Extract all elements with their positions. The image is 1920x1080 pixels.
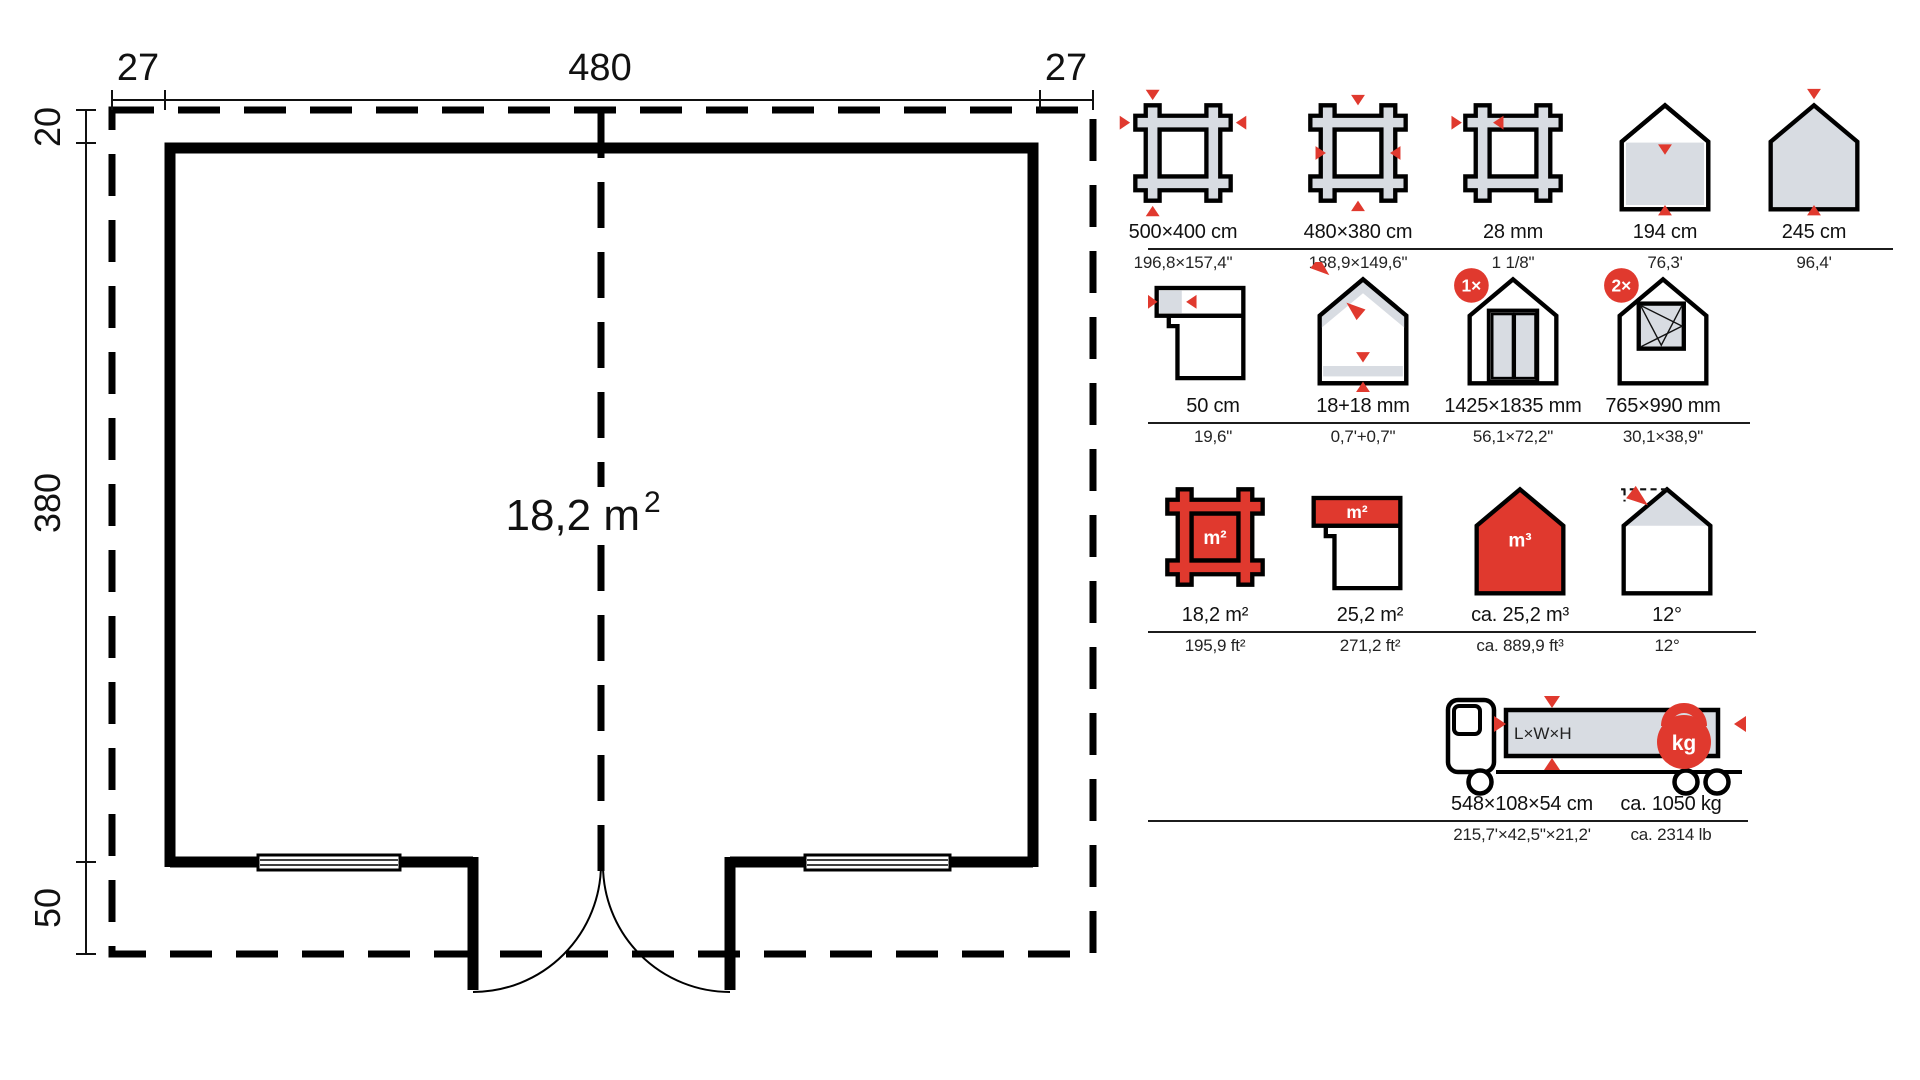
floor-area-exponent: 2 (644, 486, 661, 519)
wall-dimensions-icon (1293, 88, 1423, 218)
spec-metric: 245 cm (1729, 220, 1899, 244)
spec-metric: 548×108×54 cm (1437, 792, 1607, 816)
truck-icon: L×W×H kg (1440, 678, 1750, 803)
spec-metric: 18+18 mm (1278, 394, 1448, 418)
outer-dimensions-icon (1118, 88, 1248, 218)
spec-imperial: 96,4' (1729, 252, 1899, 274)
spec-item-ridge-height (1749, 88, 1879, 218)
dim-label-depth: 380 (27, 473, 68, 533)
spec-item-roof-overhang (1148, 262, 1278, 392)
spec-item-roof-area: m² (1305, 472, 1435, 602)
outer-dimension-arrows (1120, 90, 1247, 217)
weight-unit-label: kg (1672, 732, 1697, 755)
garden-house-spec-sheet: { "plan": { "dim_top_left": "27", "dim_t… (0, 0, 1920, 1080)
roof-floor-boards-icon (1298, 262, 1428, 392)
spec-imperial: 195,9 ft² (1130, 635, 1300, 657)
spec-item-wall-dimensions (1293, 88, 1423, 218)
roof-area-icon: m² (1305, 472, 1435, 602)
spec-metric: 480×380 cm (1273, 220, 1443, 244)
window-symbol-right (805, 855, 950, 870)
row-divider (1148, 820, 1748, 822)
spec-metric: 18,2 m² (1130, 603, 1300, 627)
row-divider (1148, 422, 1750, 424)
spec-imperial: ca. 2314 lb (1586, 824, 1756, 846)
spec-metric: 25,2 m² (1285, 603, 1455, 627)
floor-area-label: 18,2 m (505, 491, 640, 540)
spec-metric: ca. 1050 kg (1586, 792, 1756, 816)
row-divider (1148, 631, 1756, 633)
double-door-symbol (473, 857, 730, 992)
truck-wheel (1706, 771, 1729, 794)
spec-item-wall-thickness (1448, 88, 1578, 218)
truck-wheel (1675, 771, 1698, 794)
eaves-height-icon (1600, 88, 1730, 218)
ridge-height-icon (1749, 88, 1879, 218)
roof-area-icon-label: m² (1346, 502, 1367, 522)
dim-label-overhang-right: 27 (1045, 47, 1087, 89)
spec-imperial: 12° (1582, 635, 1752, 657)
spec-imperial: 271,2 ft² (1285, 635, 1455, 657)
floor-area-icon: m² (1150, 472, 1280, 602)
window-count-badge-label: 2× (1612, 275, 1632, 295)
spec-metric: 1425×1835 mm (1428, 394, 1598, 418)
double-door-icon: 1× (1448, 262, 1578, 392)
spec-metric: 50 cm (1128, 394, 1298, 418)
dim-label-overhang-left: 27 (117, 47, 159, 89)
spec-metric: 194 cm (1580, 220, 1750, 244)
spec-item-roof-floor-boards (1298, 262, 1428, 392)
spec-item-door: 1× (1448, 262, 1578, 392)
dim-label-width: 480 (568, 47, 631, 89)
window-symbol-left (258, 855, 400, 870)
truck-wheel (1469, 771, 1492, 794)
dimension-line-left (76, 110, 96, 954)
spec-item-volume: m³ (1455, 472, 1585, 602)
dim-label-overhang-top: 20 (27, 107, 68, 147)
wall-thickness-icon (1448, 88, 1578, 218)
row-divider (1148, 248, 1893, 250)
dim-label-overhang-bottom: 50 (27, 888, 68, 928)
roof-pitch-icon (1602, 472, 1732, 602)
spec-metric: 12° (1582, 603, 1752, 627)
spec-imperial: 30,1×38,9" (1578, 426, 1748, 448)
spec-metric: 765×990 mm (1578, 394, 1748, 418)
spec-metric: 500×400 cm (1098, 220, 1268, 244)
spec-metric: 28 mm (1428, 220, 1598, 244)
window-icon: 2× (1598, 262, 1728, 392)
volume-icon-label: m³ (1508, 531, 1531, 552)
volume-icon: m³ (1455, 472, 1585, 602)
spec-imperial: 56,1×72,2" (1428, 426, 1598, 448)
door-count-badge-label: 1× (1462, 275, 1482, 295)
spec-item-window: 2× (1598, 262, 1728, 392)
spec-item-outer-dimensions (1118, 88, 1248, 218)
spec-imperial: 0,7'+0,7" (1278, 426, 1448, 448)
spec-imperial: 215,7'×42,5"×21,2' (1437, 824, 1607, 846)
spec-item-eaves-height (1600, 88, 1730, 218)
truck-cab-window (1454, 706, 1480, 734)
floor-area-icon-label: m² (1203, 528, 1226, 549)
spec-item-floor-area: m² (1150, 472, 1280, 602)
floor-plan: 27 480 27 20 380 50 18,2 m 2 (0, 0, 1150, 1080)
spec-item-roof-pitch (1602, 472, 1732, 602)
spec-imperial: ca. 889,9 ft³ (1435, 635, 1605, 657)
spec-metric: ca. 25,2 m³ (1435, 603, 1605, 627)
spec-imperial: 19,6" (1128, 426, 1298, 448)
spec-item-transport: L×W×H kg (1440, 678, 1750, 803)
cargo-dimensions-label: L×W×H (1514, 724, 1572, 743)
weight-kettlebell-icon: kg (1657, 708, 1711, 769)
roof-overhang-icon (1148, 262, 1278, 392)
